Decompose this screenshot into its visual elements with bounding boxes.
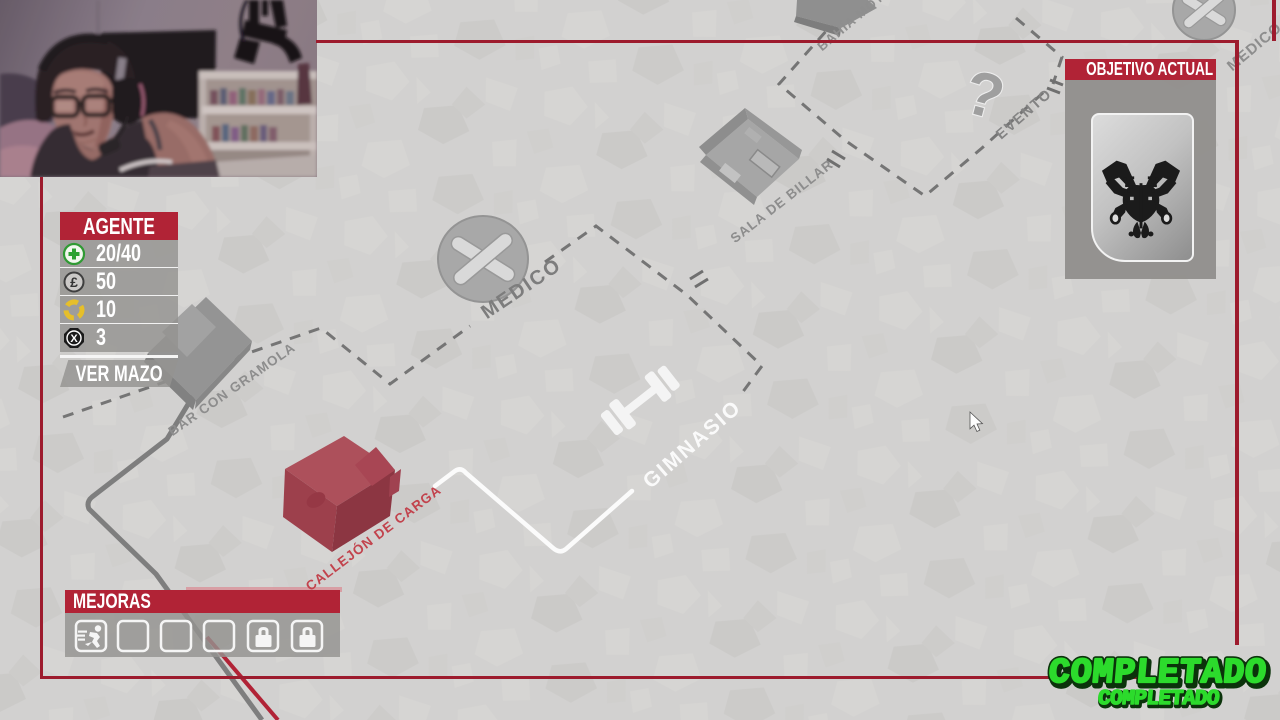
svg-text:£: £ (70, 274, 78, 290)
svg-text:X: X (70, 333, 78, 345)
svg-text:COMPLETADO: COMPLETADO (1097, 687, 1220, 711)
